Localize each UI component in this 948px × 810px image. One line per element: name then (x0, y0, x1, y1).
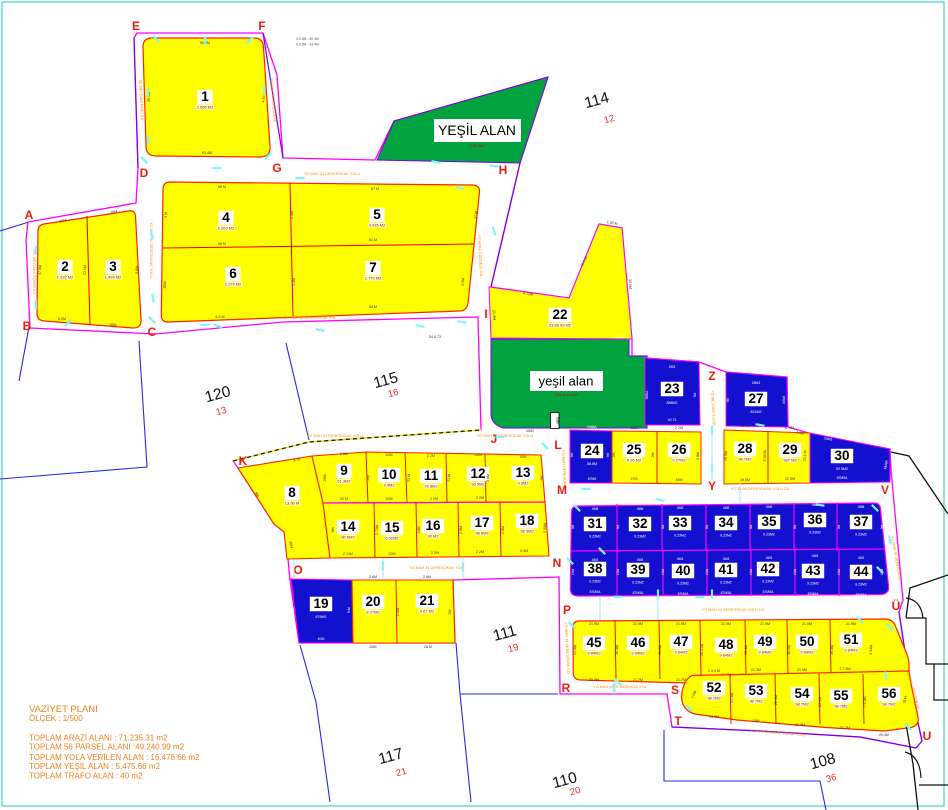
svg-text:14: 14 (340, 519, 356, 534)
svg-text:3.0 4M - 90.4M: 3.0 4M - 90.4M (296, 37, 319, 41)
svg-text:48: 48 (718, 637, 734, 652)
svg-text:21.3M: 21.3M (751, 668, 761, 672)
svg-text:4: 4 (222, 210, 230, 225)
svg-text:2 8M: 2 8M (423, 575, 431, 579)
svg-text:9.23M2: 9.23M2 (762, 580, 774, 584)
svg-text:I: I (484, 307, 487, 321)
svg-text:2.274 M2: 2.274 M2 (225, 282, 242, 287)
svg-text:7 6 9M: 7 6 9M (863, 696, 867, 707)
svg-text:21.9M: 21.9M (573, 645, 577, 655)
svg-text:KM8A: KM8A (587, 425, 597, 429)
svg-text:T: T (674, 714, 682, 728)
svg-text:84 M: 84 M (369, 305, 377, 309)
svg-text:21.9M: 21.9M (721, 622, 731, 626)
svg-text:9 84M2: 9 84M2 (674, 650, 688, 655)
svg-text:2 2M: 2 2M (427, 454, 435, 458)
svg-text:43: 43 (805, 563, 821, 578)
svg-text:28: 28 (737, 441, 753, 456)
svg-text:3.8M: 3.8M (486, 474, 490, 482)
svg-text:2.3M: 2.3M (290, 211, 294, 219)
svg-text:KM: KM (347, 607, 351, 613)
svg-text:51: 51 (843, 632, 859, 647)
svg-text:2M3: 2M3 (669, 365, 676, 369)
svg-text:27: 27 (748, 391, 763, 406)
svg-text:23M: 23M (749, 568, 753, 575)
svg-text:4M3: 4M3 (592, 558, 599, 562)
svg-text:987 M2: 987 M2 (783, 458, 797, 463)
svg-text:26M: 26M (110, 323, 117, 327)
svg-text:TOPLAM YOLA VERİLEN ALAN : 16.: TOPLAM YOLA VERİLEN ALAN : 16.478.66 m2 (29, 753, 200, 762)
svg-text:9 67 M2: 9 67 M2 (420, 609, 435, 614)
svg-text:9M: 9M (749, 524, 753, 529)
svg-text:1.232 M2: 1.232 M2 (57, 275, 74, 280)
svg-text:2 14M: 2 14M (343, 552, 353, 556)
svg-text:9 84M2: 9 84M2 (844, 648, 858, 653)
svg-text:M: M (557, 483, 567, 497)
svg-text:66 M: 66 M (218, 242, 226, 246)
svg-text:9.23M2: 9.23M2 (634, 535, 646, 539)
svg-text:7.94.3M2: 7.94.3M2 (469, 144, 485, 148)
svg-text:42: 42 (760, 561, 775, 576)
svg-text:SK MAH 34 DERESOKAK YOL: SK MAH 34 DERESOKAK YOL (283, 316, 336, 320)
svg-text:33: 33 (672, 515, 688, 530)
svg-text:9 84M2: 9 84M2 (719, 653, 733, 658)
svg-text:821M2: 821M2 (751, 410, 762, 414)
svg-text:39: 39 (630, 562, 645, 577)
svg-text:9.4M2: 9.4M2 (383, 483, 395, 488)
svg-text:54: 54 (794, 686, 810, 701)
svg-text:9M: 9M (331, 527, 335, 532)
svg-text:21 M: 21 M (447, 474, 451, 482)
svg-text:49: 49 (757, 634, 772, 649)
svg-text:26 5M: 26 5M (724, 451, 728, 461)
svg-text:12: 12 (470, 466, 485, 481)
svg-text:9 26 M2: 9 26 M2 (627, 458, 642, 463)
svg-text:23 1M: 23 1M (818, 697, 822, 707)
svg-text:9.23M2: 9.23M2 (855, 583, 867, 587)
svg-text:9.23M2: 9.23M2 (855, 533, 867, 537)
svg-text:23M: 23M (417, 526, 421, 533)
svg-text:25: 25 (626, 442, 642, 457)
svg-text:14.4M: 14.4M (709, 715, 719, 719)
svg-text:KM73: KM73 (615, 335, 624, 339)
svg-text:9.23M2: 9.23M2 (589, 580, 601, 584)
svg-text:K: K (239, 454, 248, 468)
svg-text:23M: 23M (616, 568, 620, 575)
svg-text:879M2: 879M2 (316, 615, 327, 619)
svg-text:21: 21 (419, 593, 435, 608)
svg-text:YEŞİL ALAN: YEŞİL ALAN (438, 121, 516, 138)
svg-text:21.7M: 21.7M (589, 678, 599, 682)
svg-text:21.9M: 21.9M (802, 622, 812, 626)
svg-text:98 3M2: 98 3M2 (520, 529, 534, 534)
svg-text:Ü: Ü (892, 598, 901, 613)
svg-text:SK. MEYDANI SOKAK 8.5: SK. MEYDANI SOKAK 8.5 (32, 250, 36, 295)
svg-text:TOPLAM 56 PARSEL ALANI :49.240: TOPLAM 56 PARSEL ALANI :49.240.99 m2 (29, 743, 185, 752)
svg-text:90 M2: 90 M2 (427, 534, 439, 539)
svg-text:35: 35 (761, 514, 777, 529)
svg-text:3 M: 3 M (164, 212, 168, 218)
svg-text:4M8: 4M8 (677, 506, 684, 510)
svg-text:9.23M2: 9.23M2 (763, 533, 775, 537)
svg-text:9M: 9M (705, 524, 709, 529)
svg-text:9.23M2: 9.23M2 (720, 581, 732, 585)
svg-text:2M: 2M (366, 475, 370, 480)
svg-text:9 84M2: 9 84M2 (800, 650, 814, 655)
svg-text:41: 41 (718, 562, 734, 577)
svg-text:22M: 22M (386, 453, 393, 457)
svg-text:9M: 9M (661, 524, 665, 529)
svg-text:H: H (499, 163, 508, 177)
svg-text:30: 30 (834, 448, 849, 463)
svg-text:40M2: 40M2 (526, 429, 534, 433)
svg-text:V: V (881, 483, 889, 497)
svg-text:98 7M2: 98 7M2 (834, 704, 848, 709)
svg-text:22: 22 (552, 307, 567, 322)
svg-text:2 6M: 2 6M (369, 575, 377, 579)
svg-text:3.5M: 3.5M (461, 278, 466, 286)
svg-text:G: G (272, 161, 281, 175)
svg-text:23M: 23M (661, 568, 665, 575)
svg-text:11: 11 (424, 468, 439, 483)
svg-text:9M: 9M (616, 524, 620, 529)
svg-text:2M: 2M (448, 609, 452, 614)
svg-text:19: 19 (313, 596, 328, 611)
svg-text:9.23M2: 9.23M2 (677, 582, 689, 586)
svg-text:20: 20 (365, 594, 380, 609)
svg-text:4M3: 4M3 (766, 556, 773, 560)
svg-text:23M: 23M (705, 568, 709, 575)
svg-text:4.9 5M - 33.4M: 4.9 5M - 33.4M (296, 43, 319, 47)
svg-text:2 8M: 2 8M (340, 452, 348, 456)
svg-text:9.23M2: 9.23M2 (674, 534, 686, 538)
svg-text:YG MAH 34 DERESOKAK YOLU: YG MAH 34 DERESOKAK YOLU (307, 434, 364, 438)
svg-text:ÖLÇEK : 1/500: ÖLÇEK : 1/500 (29, 714, 83, 723)
svg-text:5: 5 (373, 207, 381, 222)
svg-text:93 8M2: 93 8M2 (424, 484, 438, 489)
svg-text:9M: 9M (540, 475, 544, 480)
svg-text:4M3: 4M3 (677, 557, 684, 561)
svg-text:yeşil alan: yeşil alan (539, 374, 594, 389)
svg-text:10: 10 (381, 467, 396, 482)
svg-text:36.5M: 36.5M (787, 645, 791, 655)
svg-text:40M8: 40M8 (782, 396, 786, 405)
svg-text:22M: 22M (389, 552, 396, 556)
svg-text:46: 46 (630, 635, 646, 650)
svg-text:26: 26 (671, 442, 687, 457)
svg-text:8 27M2: 8 27M2 (366, 610, 380, 615)
svg-text:3.035 M2: 3.035 M2 (369, 223, 386, 228)
svg-text:U: U (923, 729, 932, 743)
svg-text:4M3: 4M3 (637, 558, 644, 562)
svg-text:9.23M2: 9.23M2 (807, 582, 819, 586)
svg-text:4M8: 4M8 (637, 507, 644, 511)
svg-text:23M: 23M (837, 568, 841, 575)
svg-text:2M: 2M (651, 452, 655, 457)
svg-text:2.2M: 2.2M (292, 278, 296, 286)
svg-text:TOPLAM YEŞİL ALAN : 5.475.66: TOPLAM YEŞİL ALAN : 5.475.66 m2 (29, 762, 161, 771)
svg-text:3.32.8.6.6 M2: 3.32.8.6.6 M2 (554, 393, 577, 397)
svg-text:21.9M: 21.9M (589, 622, 599, 626)
svg-text:N: N (553, 556, 562, 570)
svg-text:6.75A: 6.75A (785, 426, 795, 430)
svg-text:9 3M2: 9 3M2 (517, 481, 529, 486)
svg-text:9 27M2: 9 27M2 (672, 458, 686, 463)
svg-text:4M8: 4M8 (766, 505, 773, 509)
svg-text:F: F (258, 19, 265, 33)
svg-text:38.1M: 38.1M (628, 279, 633, 289)
svg-text:21.9M: 21.9M (760, 622, 770, 626)
svg-text:22 M: 22 M (340, 497, 348, 501)
svg-text:45M: 45M (676, 478, 683, 482)
svg-text:53: 53 (748, 683, 764, 698)
svg-text:15: 15 (384, 520, 400, 535)
svg-text:98 7M2: 98 7M2 (882, 702, 896, 707)
svg-text:44: 44 (853, 564, 869, 579)
svg-text:3 8M: 3 8M (696, 452, 700, 460)
svg-text:23: 23 (664, 381, 680, 396)
svg-text:21.7M: 21.7M (676, 678, 686, 682)
svg-text:1: 1 (201, 89, 209, 104)
svg-text:9 84M2: 9 84M2 (587, 651, 601, 656)
svg-text:21.3M: 21.3M (795, 723, 805, 727)
svg-text:2.775 M2: 2.775 M2 (365, 276, 382, 281)
svg-text:2 2M: 2 2M (431, 551, 439, 555)
svg-text:24: 24 (584, 443, 600, 458)
svg-text:4M8: 4M8 (858, 505, 865, 509)
svg-text:18: 18 (519, 513, 535, 528)
svg-text:YG MAH 34 DERESOKAK YOL: YG MAH 34 DERESOKAK YOL (593, 685, 647, 689)
svg-text:23M: 23M (793, 568, 797, 575)
svg-text:87M5A: 87M5A (678, 592, 689, 596)
svg-text:2 8M: 2 8M (459, 526, 463, 534)
svg-text:26M: 26M (323, 474, 327, 481)
svg-text:66 M: 66 M (218, 185, 226, 189)
svg-text:2: 2 (61, 259, 69, 274)
svg-text:4M3: 4M3 (723, 557, 730, 561)
svg-text:36.2M: 36.2M (658, 645, 662, 655)
svg-text:P: P (563, 603, 571, 617)
svg-text:22 M: 22 M (741, 424, 749, 428)
svg-text:22 5M: 22 5M (785, 477, 795, 481)
svg-text:6.2 M: 6.2 M (216, 315, 225, 319)
svg-text:E: E (132, 19, 140, 33)
svg-text:87M5A: 87M5A (633, 591, 644, 595)
svg-text:1 4.9 M: 1 4.9 M (708, 669, 720, 673)
svg-text:2 2M: 2 2M (675, 426, 683, 430)
svg-text:26 M: 26 M (424, 645, 432, 649)
svg-text:9.23M2: 9.23M2 (809, 531, 821, 535)
svg-text:87M5A: 87M5A (808, 592, 819, 596)
svg-text:J: J (491, 432, 498, 446)
svg-text:93 5M2: 93 5M2 (471, 482, 485, 487)
svg-text:YG MAH 34 DERESOKAK YOLU CD: YG MAH 34 DERESOKAK YOLU CD (702, 608, 765, 612)
svg-text:21.7M: 21.7M (633, 678, 643, 682)
svg-text:2 72M: 2 72M (375, 525, 379, 535)
svg-text:9M: 9M (880, 524, 884, 529)
svg-text:98 7M2: 98 7M2 (795, 702, 809, 707)
svg-text:29: 29 (782, 442, 797, 457)
svg-text:36: 36 (807, 512, 823, 527)
svg-text:50: 50 (799, 634, 814, 649)
svg-text:9.23M2: 9.23M2 (632, 581, 644, 585)
svg-text:C: C (148, 325, 157, 339)
svg-text:O: O (293, 563, 302, 577)
svg-text:9 84M2: 9 84M2 (631, 651, 645, 656)
svg-text:9M: 9M (837, 524, 841, 529)
svg-text:47: 47 (673, 634, 688, 649)
svg-text:2.2M: 2.2M (58, 317, 66, 321)
svg-text:YG MAH 34 DERESOKAK YOLU: YG MAH 34 DERESOKAK YOLU (149, 222, 153, 279)
svg-text:L: L (554, 438, 561, 452)
svg-text:23M: 23M (753, 719, 760, 723)
svg-text:34: 34 (718, 515, 734, 530)
svg-text:32: 32 (632, 516, 647, 531)
svg-text:2 2M: 2 2M (476, 496, 484, 500)
svg-text:3 54M: 3 54M (869, 645, 873, 655)
svg-text:4M8: 4M8 (723, 506, 730, 510)
svg-text:6: 6 (229, 266, 237, 281)
svg-text:87M5A: 87M5A (763, 590, 774, 594)
svg-text:31: 31 (587, 516, 603, 531)
svg-text:23.86.99 M2: 23.86.99 M2 (549, 323, 572, 328)
svg-text:37: 37 (853, 514, 868, 529)
svg-text:40M: 40M (318, 574, 325, 578)
svg-text:22M: 22M (475, 453, 482, 457)
svg-text:45: 45 (586, 635, 602, 650)
svg-text:9.23M2: 9.23M2 (589, 535, 601, 539)
svg-text:38: 38 (587, 561, 603, 576)
svg-text:22M: 22M (631, 426, 638, 430)
svg-text:TOPLAM TRAFO ALAN : 40 m2: TOPLAM TRAFO ALAN : 40 m2 (29, 772, 143, 781)
svg-text:7: 7 (369, 260, 377, 275)
svg-text:4M3: 4M3 (812, 554, 819, 558)
svg-text:54.8 73: 54.8 73 (429, 335, 441, 339)
svg-text:60 6M2: 60 6M2 (341, 535, 355, 540)
svg-text:21.9M: 21.9M (633, 622, 643, 626)
svg-text:9M8A: 9M8A (645, 390, 649, 400)
svg-text:33.4M: 33.4M (744, 645, 748, 655)
svg-text:21.9M: 21.9M (676, 622, 686, 626)
svg-text:26M: 26M (370, 645, 377, 649)
svg-text:8: 8 (288, 485, 296, 500)
svg-text:21.7M: 21.7M (840, 726, 850, 730)
svg-text:21.9M: 21.9M (797, 668, 807, 672)
svg-text:9M: 9M (571, 524, 575, 529)
svg-text:1.494 M2: 1.494 M2 (105, 275, 122, 280)
svg-text:93.4M: 93.4M (202, 151, 212, 155)
svg-text:9M: 9M (291, 607, 295, 612)
svg-text:28M3: 28M3 (752, 381, 761, 385)
svg-text:2.656 M2: 2.656 M2 (197, 105, 214, 110)
svg-text:2.263 M2: 2.263 M2 (218, 226, 235, 231)
svg-text:87M5A: 87M5A (856, 593, 867, 597)
svg-text:9M: 9M (693, 392, 697, 397)
svg-text:36.4M: 36.4M (615, 645, 619, 655)
svg-text:9.4M: 9.4M (520, 549, 528, 553)
svg-text:23 M: 23 M (407, 474, 411, 482)
svg-text:56: 56 (881, 686, 897, 701)
svg-text:YG MAH 34 DERESOKAK YOLU: YG MAH 34 DERESOKAK YOLU (477, 434, 534, 438)
svg-text:6 02M2: 6 02M2 (385, 536, 399, 541)
svg-text:21.3M: 21.3M (730, 693, 734, 703)
svg-text:21.9M: 21.9M (846, 622, 856, 626)
svg-text:4M3: 4M3 (858, 556, 865, 560)
svg-text:2.7 5M: 2.7 5M (840, 667, 851, 671)
svg-text:2 2M: 2 2M (476, 550, 484, 554)
svg-text:13.96 M: 13.96 M (285, 501, 299, 506)
svg-text:B: B (23, 319, 32, 333)
svg-text:9: 9 (340, 463, 348, 478)
svg-text:98 7M2: 98 7M2 (749, 699, 763, 704)
svg-text:2 5M: 2 5M (396, 608, 400, 616)
svg-text:37 M: 37 M (474, 211, 479, 219)
svg-text:87M5A: 87M5A (590, 590, 601, 594)
svg-text:22M: 22M (386, 497, 393, 501)
svg-text:40 73: 40 73 (668, 418, 677, 422)
svg-text:87M5A: 87M5A (721, 591, 732, 595)
svg-text:S: S (671, 683, 679, 697)
svg-text:D: D (140, 166, 149, 180)
svg-text:67 M: 67 M (371, 187, 379, 191)
svg-text:98 7M2: 98 7M2 (738, 457, 752, 462)
svg-text:98 8M2: 98 8M2 (475, 531, 489, 536)
svg-text:4M8: 4M8 (592, 507, 599, 511)
svg-text:40: 40 (675, 563, 690, 578)
svg-text:16M: 16M (520, 455, 527, 459)
svg-text:40M: 40M (318, 637, 325, 641)
svg-text:52: 52 (706, 680, 721, 695)
svg-text:26 4M: 26 4M (774, 695, 778, 705)
svg-text:92 5M2: 92 5M2 (836, 467, 848, 471)
svg-text:9M: 9M (606, 452, 610, 457)
svg-text:9.23M2: 9.23M2 (720, 534, 732, 538)
svg-text:R: R (562, 681, 571, 695)
svg-text:16 5M: 16 5M (740, 478, 750, 482)
svg-text:2 64M: 2 64M (543, 523, 547, 533)
svg-text:9M: 9M (793, 524, 797, 529)
svg-text:2M: 2M (612, 452, 616, 457)
svg-text:2.8M: 2.8M (501, 526, 505, 534)
svg-text:26.01M: 26.01M (700, 644, 704, 656)
svg-text:47.6M: 47.6M (38, 265, 42, 275)
svg-text:21.9M: 21.9M (492, 310, 497, 320)
svg-text:TOPLAM ARAZİ ALANI : 71.235.31: TOPLAM ARAZİ ALANI : 71.235.31 m2 (29, 734, 168, 743)
svg-text:88.8M: 88.8M (587, 462, 597, 466)
svg-text:17: 17 (474, 515, 489, 530)
svg-text:23M: 23M (571, 568, 575, 575)
svg-text:9M: 9M (570, 452, 574, 457)
svg-text:trafo: trafo (556, 417, 560, 424)
svg-text:36.4M: 36.4M (830, 645, 834, 655)
svg-text:3: 3 (109, 259, 117, 274)
svg-text:81 M: 81 M (369, 238, 377, 242)
svg-text:9.6M: 9.6M (135, 266, 139, 274)
svg-text:A: A (25, 208, 34, 222)
svg-text:9M: 9M (726, 397, 730, 402)
svg-text:Z: Z (708, 369, 715, 383)
svg-text:55: 55 (833, 688, 849, 703)
svg-text:YG MAH 34 DERESOKAK YOLU: YG MAH 34 DERESOKAK YOLU (304, 172, 361, 176)
svg-text:YG MAH 34 DERESOKAK YOL: YG MAH 34 DERESOKAK YOL (409, 566, 463, 570)
svg-text:13: 13 (515, 465, 531, 480)
svg-text:9 84M2: 9 84M2 (758, 650, 772, 655)
svg-text:3 58 M: 3 58 M (763, 450, 767, 461)
svg-text:98 7M2: 98 7M2 (707, 696, 721, 701)
svg-text:16: 16 (425, 518, 441, 533)
svg-text:36M: 36M (163, 281, 167, 288)
svg-text:23 2 M: 23 2 M (803, 450, 807, 461)
